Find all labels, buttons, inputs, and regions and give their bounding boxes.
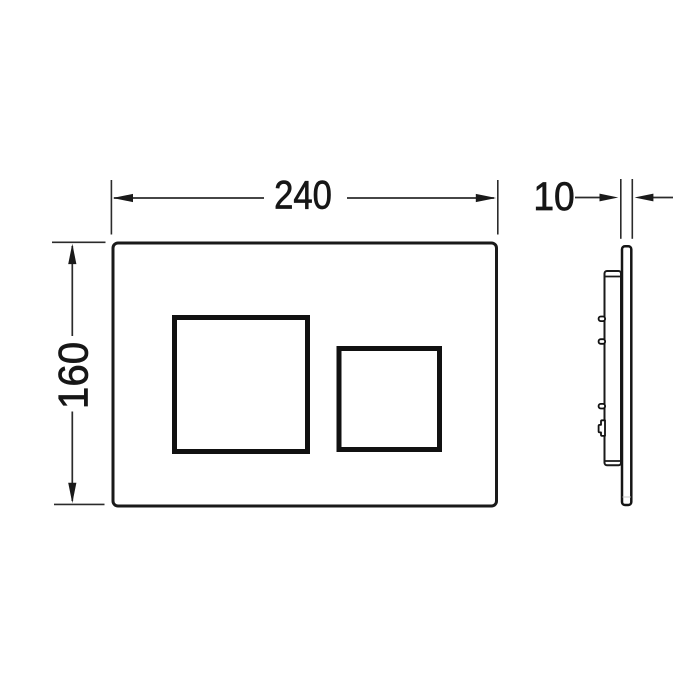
svg-text:160: 160 [50, 342, 97, 409]
svg-text:10: 10 [533, 175, 574, 220]
svg-text:240: 240 [274, 172, 332, 217]
